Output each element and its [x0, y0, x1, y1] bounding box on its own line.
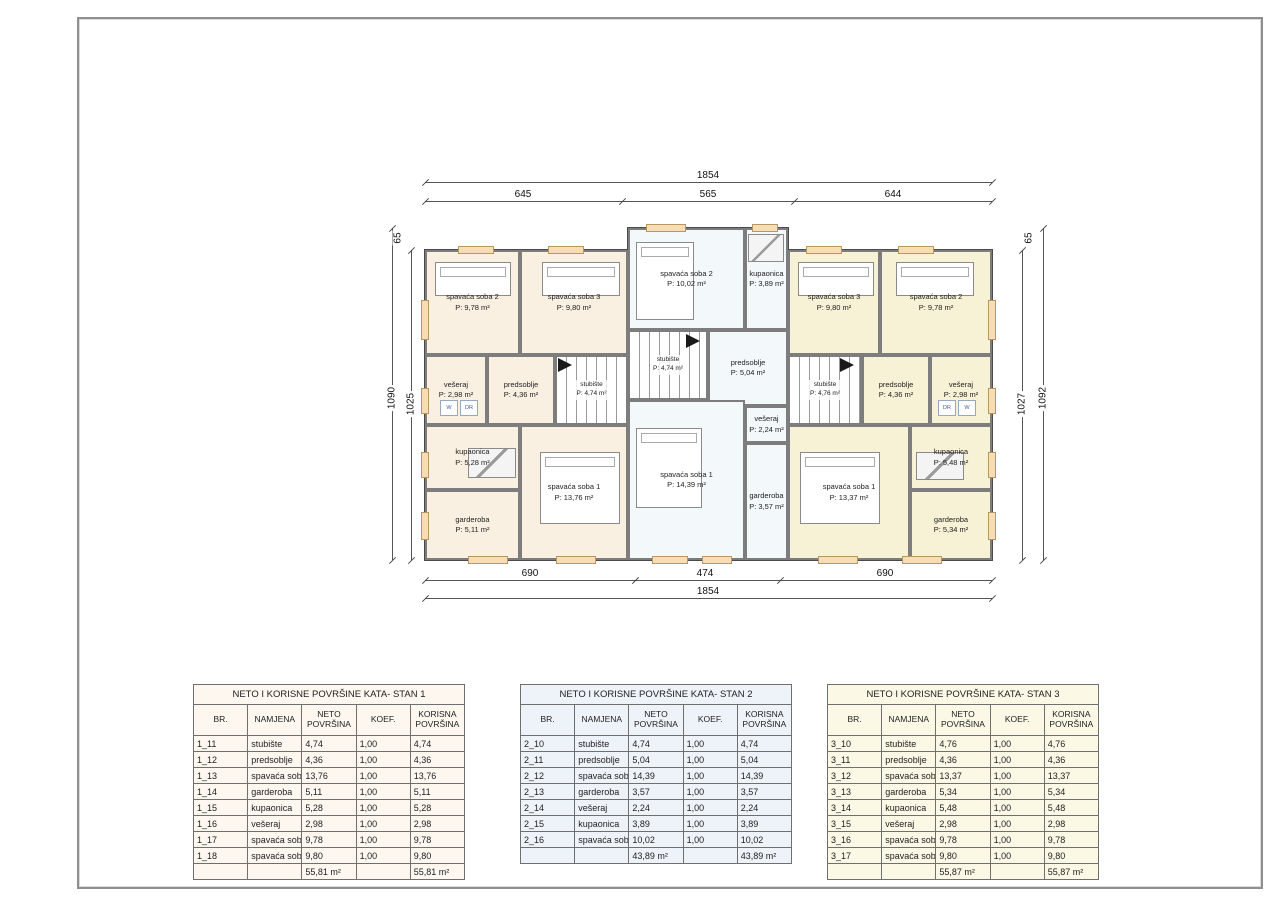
room-area: P: 3,57 m² [749, 502, 784, 512]
table-cell: 1,00 [990, 848, 1044, 864]
room-s1-predsoblje: predsobljeP: 4,36 m² [487, 355, 555, 425]
table-row: 3_10stubište4,761,004,76 [828, 736, 1099, 752]
table-header-cell: NAMJENA [575, 705, 629, 736]
room-area: P: 9,78 m² [446, 303, 499, 313]
room-s3-garderoba: garderobaP: 5,34 m² [910, 490, 992, 560]
table-cell: 1,00 [683, 768, 737, 784]
table-cell: 5,34 [936, 784, 990, 800]
table-row: 1_16vešeraj2,981,002,98 [194, 816, 465, 832]
table-total-row: 43,89 m²43,89 m² [521, 848, 792, 864]
dim-label: 690 [520, 568, 541, 579]
table-header-cell: KOEF. [990, 705, 1044, 736]
room-name: vešeraj [754, 414, 778, 423]
table-cell: predsoblje [248, 752, 302, 768]
table-cell: 3,57 [737, 784, 791, 800]
room-label: spavaća soba 2P: 9,78 m² [446, 292, 499, 312]
table-cell: 1,00 [683, 736, 737, 752]
room-area: P: 13,37 m² [823, 493, 876, 503]
table-cell: 4,74 [629, 736, 683, 752]
table-cell: 1,00 [990, 768, 1044, 784]
room-label: garderobaP: 5,34 m² [934, 515, 969, 535]
room-label: vešerajP: 2,24 m² [749, 414, 784, 434]
table-cell: 1,00 [990, 752, 1044, 768]
room-label: vešerajP: 2,98 m² [439, 380, 474, 400]
table-cell [990, 864, 1044, 880]
dim-label: 644 [883, 189, 904, 200]
table-cell: 1,00 [356, 784, 410, 800]
room-s2-predsoblje: predsobljeP: 5,04 m² [708, 330, 788, 406]
table-total-korisna: 55,87 m² [1044, 864, 1098, 880]
appliance-dr-box: DR [460, 400, 478, 416]
table-total-neto: 55,81 m² [302, 864, 356, 880]
table-cell: spavaća soba 3 [882, 848, 936, 864]
dim-label: 1027 [1017, 391, 1028, 417]
table-cell: 1,00 [683, 752, 737, 768]
room-area: P: 9,80 m² [548, 303, 601, 313]
table-total-korisna: 55,81 m² [410, 864, 464, 880]
table-cell: 3_13 [828, 784, 882, 800]
table-row: 1_17spavaća soba 29,781,009,78 [194, 832, 465, 848]
table-cell: 10,02 [629, 832, 683, 848]
table-cell [575, 848, 629, 864]
appliance-w-box: W [440, 400, 458, 416]
table-cell: garderoba [575, 784, 629, 800]
table-cell: 4,36 [410, 752, 464, 768]
table-row: 3_11predsoblje4,361,004,36 [828, 752, 1099, 768]
table-cell: kupaonica [882, 800, 936, 816]
table-cell: 1_18 [194, 848, 248, 864]
table-cell: 14,39 [629, 768, 683, 784]
table-cell: 1,00 [990, 736, 1044, 752]
table-cell: 1,00 [683, 832, 737, 848]
table-cell: 13,37 [1044, 768, 1098, 784]
table-cell [828, 864, 882, 880]
room-area: P: 2,24 m² [749, 425, 784, 435]
table-cell: 1,00 [356, 816, 410, 832]
table-cell: 5,48 [1044, 800, 1098, 816]
table-cell: 1,00 [356, 848, 410, 864]
room-area: P: 4,74 m² [577, 390, 607, 399]
room-label: garderobaP: 3,57 m² [749, 491, 784, 511]
table-cell: vešeraj [575, 800, 629, 816]
table-cell: 9,80 [936, 848, 990, 864]
table-cell: kupaonica [248, 800, 302, 816]
room-name: kupaonica [934, 447, 968, 456]
table-total-row: 55,87 m²55,87 m² [828, 864, 1099, 880]
table-cell: 5,28 [302, 800, 356, 816]
room-area: P: 5,04 m² [731, 368, 766, 378]
table-cell: 1,00 [683, 816, 737, 832]
room-name: kupaonica [749, 269, 783, 278]
table-cell: 1,00 [356, 752, 410, 768]
bed-icon [798, 262, 874, 296]
table-cell: 5,48 [936, 800, 990, 816]
table-row: 3_15vešeraj2,981,002,98 [828, 816, 1099, 832]
stair-direction-arrow-icon [840, 358, 854, 372]
table-cell: spavaća soba 2 [248, 832, 302, 848]
table-row: 3_12spavaća soba 113,371,0013,37 [828, 768, 1099, 784]
table-cell: 9,78 [936, 832, 990, 848]
table-cell: 1,00 [356, 768, 410, 784]
table-cell: 1,00 [683, 800, 737, 816]
table-cell: 4,76 [1044, 736, 1098, 752]
table-cell: 2_10 [521, 736, 575, 752]
room-area: P: 2,98 m² [439, 390, 474, 400]
table-cell: 3_16 [828, 832, 882, 848]
table-header-cell: BR. [828, 705, 882, 736]
room-label: predsobljeP: 4,36 m² [879, 380, 914, 400]
table-cell: 1_11 [194, 736, 248, 752]
table-cell: 5,11 [302, 784, 356, 800]
table-cell: 3_17 [828, 848, 882, 864]
table-header-cell: BR. [521, 705, 575, 736]
room-name: spavaća soba 3 [808, 292, 861, 301]
dim-label: 690 [875, 568, 896, 579]
table-header-cell: KOEF. [356, 705, 410, 736]
table-row: 2_13garderoba3,571,003,57 [521, 784, 792, 800]
room-s2-veseraj: vešerajP: 2,24 m² [745, 406, 788, 443]
table-header-cell: KORISNA POVRŠINA [1044, 705, 1098, 736]
table-cell: 4,74 [737, 736, 791, 752]
room-label: kupaonicaP: 3,89 m² [749, 269, 784, 289]
table-row: 2_12spavaća soba 114,391,0014,39 [521, 768, 792, 784]
table-cell: 2,98 [410, 816, 464, 832]
area-table-stan1: NETO I KORISNE POVRŠINE KATA- STAN 1BR.N… [193, 684, 465, 880]
room-label: spavaća soba 1P: 13,37 m² [823, 482, 876, 502]
table-cell [248, 864, 302, 880]
table-row: 3_14kupaonica5,481,005,48 [828, 800, 1099, 816]
table-header-cell: BR. [194, 705, 248, 736]
table-cell: 2_15 [521, 816, 575, 832]
room-name: spavaća soba 1 [548, 482, 601, 491]
table-cell: 1,00 [990, 832, 1044, 848]
table-cell: 2,98 [1044, 816, 1098, 832]
table-row: 1_13spavaća soba 113,761,0013,76 [194, 768, 465, 784]
room-area: P: 4,36 m² [879, 390, 914, 400]
room-label: stubišteP: 4,76 m² [808, 380, 842, 400]
room-s3-predsoblje: predsobljeP: 4,36 m² [862, 355, 930, 425]
bed-icon [542, 262, 620, 296]
table-cell: 2,98 [936, 816, 990, 832]
dim-label: 1090 [387, 385, 398, 411]
room-name: spavaća soba 2 [660, 269, 713, 278]
bed-icon [896, 262, 974, 296]
table-cell: 4,76 [936, 736, 990, 752]
table-total-row: 55,81 m²55,81 m² [194, 864, 465, 880]
room-name: garderoba [749, 491, 783, 500]
table-row: 1_15kupaonica5,281,005,28 [194, 800, 465, 816]
table-cell: 9,78 [302, 832, 356, 848]
room-name: stubište [814, 381, 836, 388]
table-cell: 5,28 [410, 800, 464, 816]
table-total-neto: 55,87 m² [936, 864, 990, 880]
room-area: P: 13,76 m² [548, 493, 601, 503]
table-row: 2_11predsoblje5,041,005,04 [521, 752, 792, 768]
dim-label: 474 [695, 568, 716, 579]
table-row: 1_14garderoba5,111,005,11 [194, 784, 465, 800]
room-name: spavaća soba 1 [823, 482, 876, 491]
table-cell: spavaća soba 1 [882, 768, 936, 784]
room-label: vešerajP: 2,98 m² [944, 380, 979, 400]
table-header-cell: NAMJENA [248, 705, 302, 736]
room-area: P: 5,48 m² [934, 458, 969, 468]
room-area: P: 4,36 m² [504, 390, 539, 400]
table-cell: 4,36 [1044, 752, 1098, 768]
table-header-cell: NETO POVRŠINA [936, 705, 990, 736]
room-area: P: 9,80 m² [808, 303, 861, 313]
table-cell: spavaća soba 2 [882, 832, 936, 848]
table-cell: 4,36 [302, 752, 356, 768]
table-total-neto: 43,89 m² [629, 848, 683, 864]
table-cell: 3,89 [629, 816, 683, 832]
table-cell: 3_14 [828, 800, 882, 816]
room-s1-garderoba: garderobaP: 5,11 m² [425, 490, 520, 560]
table-title: NETO I KORISNE POVRŠINE KATA- STAN 3 [828, 685, 1099, 705]
room-name: garderoba [455, 515, 489, 524]
stair-direction-arrow-icon [686, 334, 700, 348]
table-row: 2_14vešeraj2,241,002,24 [521, 800, 792, 816]
table-cell [521, 848, 575, 864]
table-cell: kupaonica [575, 816, 629, 832]
table-cell: predsoblje [882, 752, 936, 768]
room-name: vešeraj [444, 380, 468, 389]
table-cell: 1_14 [194, 784, 248, 800]
dim-label: 1854 [695, 170, 721, 181]
table-cell: 10,02 [737, 832, 791, 848]
dim-label: 1854 [695, 586, 721, 597]
table-cell: 1_15 [194, 800, 248, 816]
room-label: garderobaP: 5,11 m² [455, 515, 489, 535]
dim-label: 1025 [406, 391, 417, 417]
table-row: 3_16spavaća soba 29,781,009,78 [828, 832, 1099, 848]
table-cell: spavaća soba 3 [248, 848, 302, 864]
room-label: kupaonicaP: 5,48 m² [934, 447, 969, 467]
table-header-cell: NAMJENA [882, 705, 936, 736]
room-area: P: 5,11 m² [455, 525, 489, 535]
table-cell: garderoba [248, 784, 302, 800]
table-cell: 14,39 [737, 768, 791, 784]
room-area: P: 14,39 m² [660, 480, 713, 490]
room-name: vešeraj [949, 380, 973, 389]
area-table-stan2: NETO I KORISNE POVRŠINE KATA- STAN 2BR.N… [520, 684, 792, 864]
table-cell: 2_16 [521, 832, 575, 848]
table-cell: 3_11 [828, 752, 882, 768]
table-row: 2_15kupaonica3,891,003,89 [521, 816, 792, 832]
table-header-cell: NETO POVRŠINA [629, 705, 683, 736]
table-cell [882, 864, 936, 880]
room-label: kupaonicaP: 5,28 m² [455, 447, 490, 467]
table-cell: garderoba [882, 784, 936, 800]
table-cell: 3_12 [828, 768, 882, 784]
room-area: P: 2,98 m² [944, 390, 979, 400]
dim-label: 1092 [1038, 385, 1049, 411]
table-cell: 1_17 [194, 832, 248, 848]
table-cell: spavaća soba 1 [575, 768, 629, 784]
table-header-cell: NETO POVRŠINA [302, 705, 356, 736]
table-cell: stubište [248, 736, 302, 752]
dim-label: 565 [698, 189, 719, 200]
bed-icon [435, 262, 511, 296]
dim-label: 65 [1024, 230, 1035, 245]
table-title: NETO I KORISNE POVRŠINE KATA- STAN 1 [194, 685, 465, 705]
table-total-korisna: 43,89 m² [737, 848, 791, 864]
table-cell: 1,00 [356, 832, 410, 848]
room-label: spavaća soba 3P: 9,80 m² [548, 292, 601, 312]
room-area: P: 4,74 m² [653, 365, 683, 374]
table-cell: 5,11 [410, 784, 464, 800]
table-cell: spavaća soba 1 [248, 768, 302, 784]
room-area: P: 3,89 m² [749, 279, 784, 289]
bed-icon [636, 428, 702, 508]
table-cell: 4,74 [302, 736, 356, 752]
table-header-cell: KORISNA POVRŠINA [737, 705, 791, 736]
table-row: 2_10stubište4,741,004,74 [521, 736, 792, 752]
room-name: spavaća soba 2 [910, 292, 963, 301]
table-cell: 2_12 [521, 768, 575, 784]
table-cell: 2_11 [521, 752, 575, 768]
room-label: stubišteP: 4,74 m² [651, 355, 685, 375]
table-cell: 1_16 [194, 816, 248, 832]
table-cell: 9,80 [302, 848, 356, 864]
table-cell: 13,37 [936, 768, 990, 784]
table-cell: 2,24 [737, 800, 791, 816]
room-label: spavaća soba 1P: 13,76 m² [548, 482, 601, 502]
table-cell: 3,57 [629, 784, 683, 800]
area-table-stan3: NETO I KORISNE POVRŠINE KATA- STAN 3BR.N… [827, 684, 1099, 880]
room-name: predsoblje [731, 358, 766, 367]
table-cell: 1,00 [990, 800, 1044, 816]
table-cell: 3,89 [737, 816, 791, 832]
stair-direction-arrow-icon [558, 358, 572, 372]
table-row: 3_17spavaća soba 39,801,009,80 [828, 848, 1099, 864]
table-cell: 1,00 [356, 736, 410, 752]
table-row: 1_12predsoblje4,361,004,36 [194, 752, 465, 768]
table-header-cell: KORISNA POVRŠINA [410, 705, 464, 736]
room-area: P: 9,78 m² [910, 303, 963, 313]
table-cell: 1,00 [990, 784, 1044, 800]
table-cell: 13,76 [410, 768, 464, 784]
appliance-w-box: W [958, 400, 976, 416]
table-cell: 4,36 [936, 752, 990, 768]
table-cell: 1,00 [683, 784, 737, 800]
room-label: spavaća soba 2P: 10,02 m² [660, 269, 713, 289]
table-cell: 13,76 [302, 768, 356, 784]
table-cell: 2,24 [629, 800, 683, 816]
shower-icon [748, 234, 784, 262]
room-name: kupaonica [455, 447, 489, 456]
table-row: 3_13garderoba5,341,005,34 [828, 784, 1099, 800]
table-cell: 2_14 [521, 800, 575, 816]
room-name: predsoblje [879, 380, 914, 389]
table-cell: 3_10 [828, 736, 882, 752]
table-cell: 4,74 [410, 736, 464, 752]
room-name: predsoblje [504, 380, 539, 389]
table-cell [356, 864, 410, 880]
room-label: predsobljeP: 4,36 m² [504, 380, 539, 400]
room-label: spavaća soba 3P: 9,80 m² [808, 292, 861, 312]
dim-label: 65 [393, 230, 404, 245]
room-area: P: 4,76 m² [810, 390, 840, 399]
table-row: 1_11stubište4,741,004,74 [194, 736, 465, 752]
table-cell: 2_13 [521, 784, 575, 800]
room-area: P: 10,02 m² [660, 279, 713, 289]
table-cell: 1_13 [194, 768, 248, 784]
table-cell: vešeraj [882, 816, 936, 832]
dim-label: 645 [513, 189, 534, 200]
table-cell: 3_15 [828, 816, 882, 832]
room-s2-garderoba: garderobaP: 3,57 m² [745, 443, 788, 560]
room-label: stubišteP: 4,74 m² [575, 380, 609, 400]
table-cell: 2,98 [302, 816, 356, 832]
table-row: 2_16spavaća soba 210,021,0010,02 [521, 832, 792, 848]
table-cell [194, 864, 248, 880]
table-title: NETO I KORISNE POVRŠINE KATA- STAN 2 [521, 685, 792, 705]
table-cell: 5,04 [629, 752, 683, 768]
room-label: spavaća soba 2P: 9,78 m² [910, 292, 963, 312]
table-cell: 5,34 [1044, 784, 1098, 800]
table-cell: 5,04 [737, 752, 791, 768]
table-cell: spavaća soba 2 [575, 832, 629, 848]
table-cell: stubište [882, 736, 936, 752]
room-name: spavaća soba 1 [660, 470, 713, 479]
room-label: predsobljeP: 5,04 m² [731, 358, 766, 378]
table-cell [683, 848, 737, 864]
table-cell: 1,00 [990, 816, 1044, 832]
room-name: spavaća soba 3 [548, 292, 601, 301]
room-area: P: 5,28 m² [455, 458, 490, 468]
table-cell: 9,78 [1044, 832, 1098, 848]
table-cell: 1_12 [194, 752, 248, 768]
room-area: P: 5,34 m² [934, 525, 969, 535]
room-name: stubište [657, 356, 679, 363]
table-cell: 1,00 [356, 800, 410, 816]
table-cell: vešeraj [248, 816, 302, 832]
table-row: 1_18spavaća soba 39,801,009,80 [194, 848, 465, 864]
room-name: stubište [580, 381, 602, 388]
room-label: spavaća soba 1P: 14,39 m² [660, 470, 713, 490]
table-cell: 9,80 [410, 848, 464, 864]
table-cell: 9,78 [410, 832, 464, 848]
table-cell: stubište [575, 736, 629, 752]
table-header-cell: KOEF. [683, 705, 737, 736]
table-cell: 9,80 [1044, 848, 1098, 864]
room-name: spavaća soba 2 [446, 292, 499, 301]
table-cell: predsoblje [575, 752, 629, 768]
room-name: garderoba [934, 515, 968, 524]
appliance-dr-box: DR [938, 400, 956, 416]
